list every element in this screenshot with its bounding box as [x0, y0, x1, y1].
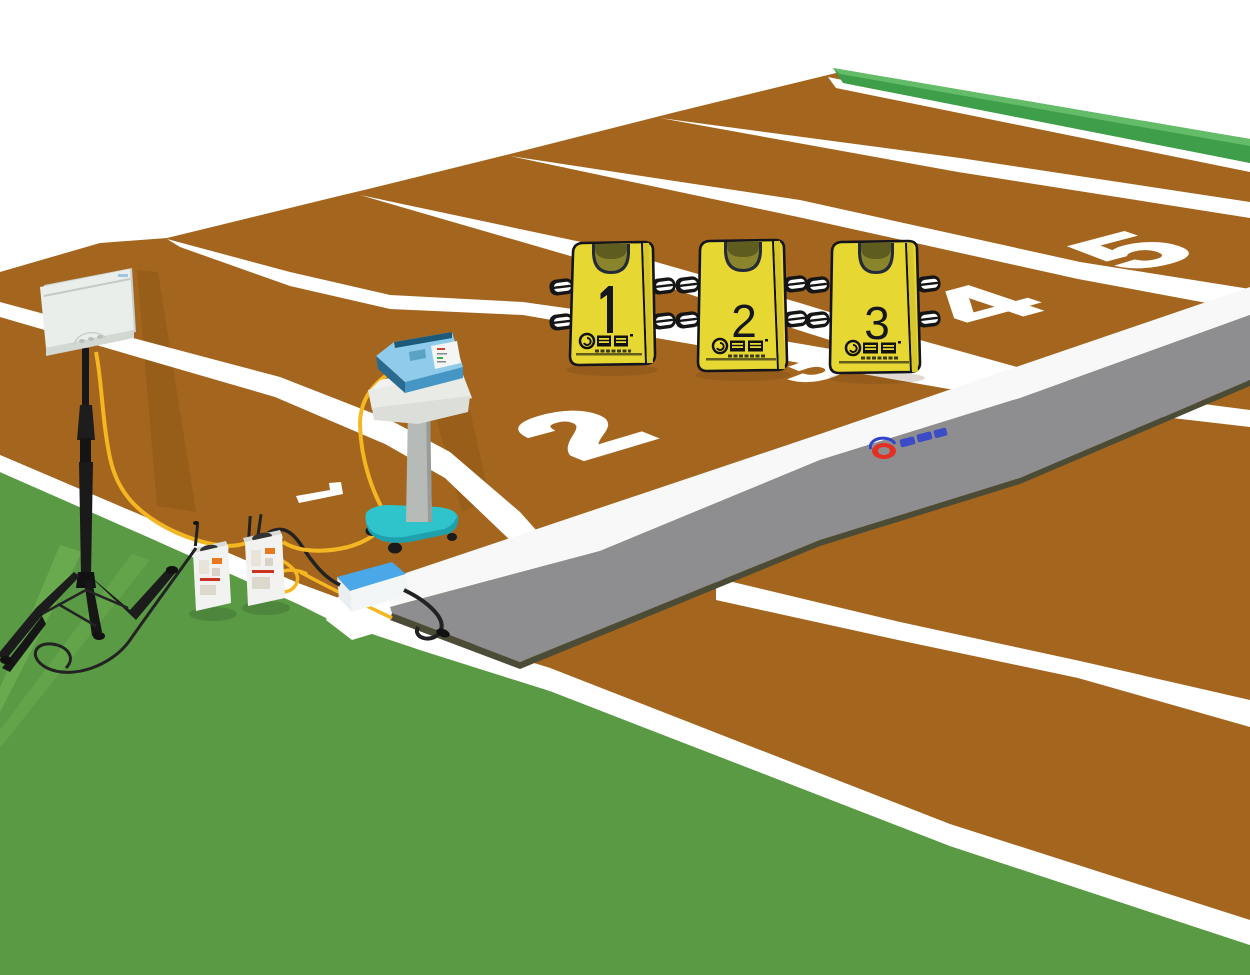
svg-text:2: 2: [731, 295, 757, 347]
svg-text:3: 3: [864, 297, 890, 349]
